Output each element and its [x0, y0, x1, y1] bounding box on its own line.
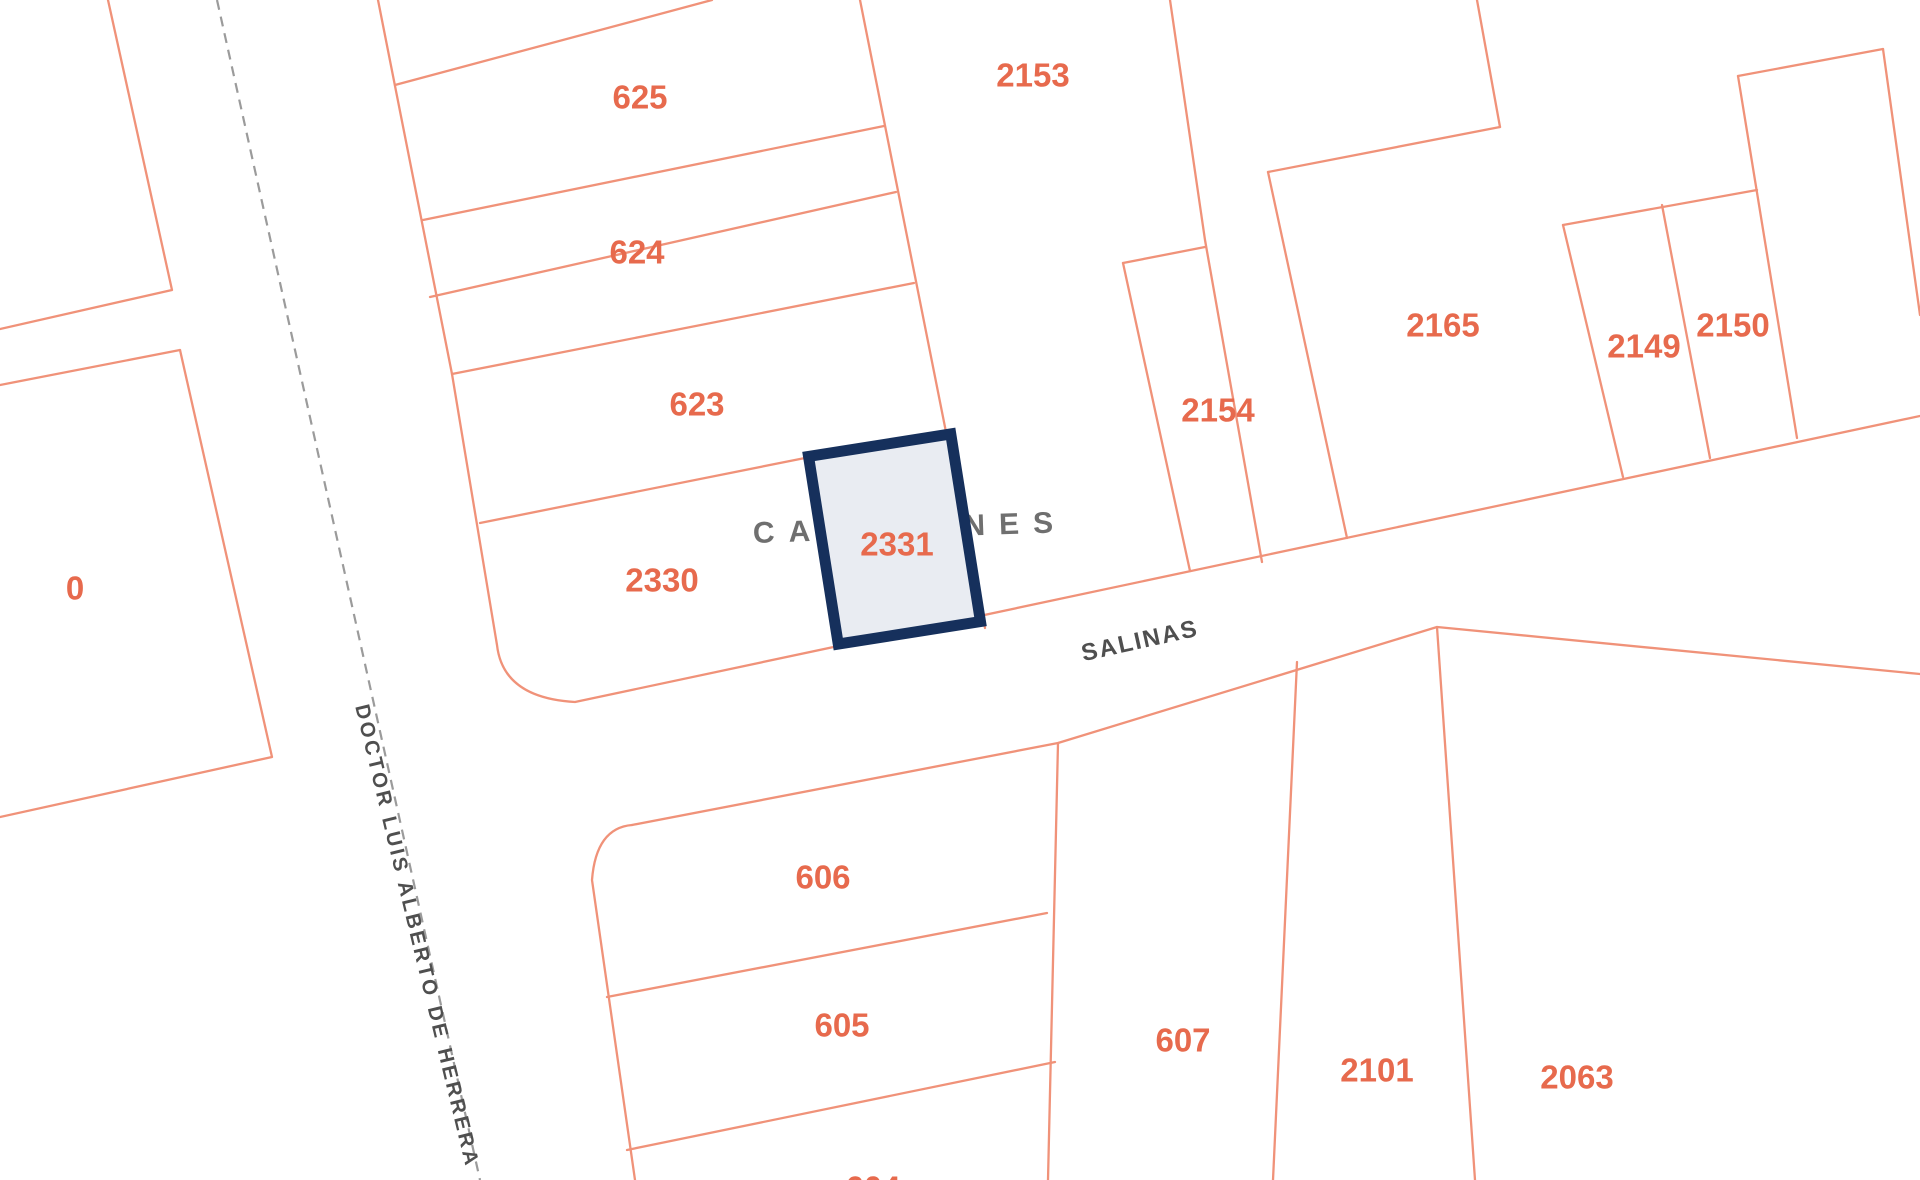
parcel-label-606[interactable]: 606 — [795, 859, 850, 896]
parcel-label-623[interactable]: 623 — [669, 386, 724, 423]
boundary-2149-2150-top — [1563, 190, 1757, 225]
boundary-2154-top — [1123, 247, 1205, 263]
boundary-parcel0-right-bottom — [0, 350, 272, 817]
parcel-label-2150[interactable]: 2150 — [1696, 307, 1769, 344]
boundary-2154-left — [1123, 263, 1190, 571]
parcel-label-2149[interactable]: 2149 — [1607, 328, 1680, 365]
boundary-2165-top — [1268, 127, 1500, 172]
parcel-label-2153[interactable]: 2153 — [996, 57, 1069, 94]
parcel-label-607[interactable]: 607 — [1155, 1022, 1210, 1059]
boundary-606-605 — [607, 913, 1047, 997]
boundary-road-lower-edge — [632, 627, 1920, 825]
boundary-623-2330 — [480, 457, 810, 523]
boundary-625-top — [395, 0, 712, 85]
boundary-625-624 — [423, 126, 884, 220]
boundary-topleft-strip — [0, 0, 172, 329]
parcel-label-0[interactable]: 0 — [66, 570, 84, 607]
parcel-label-624[interactable]: 624 — [609, 234, 665, 271]
boundary-2165-step-up — [1477, 0, 1500, 127]
boundary-block606-left — [592, 825, 635, 1180]
map-viewport[interactable]: CANELONES SALINAS DOCTOR LUIS ALBERTO DE… — [0, 0, 1920, 1180]
boundary-block606-right — [1048, 743, 1058, 1180]
parcel-label-2154[interactable]: 2154 — [1181, 392, 1255, 429]
street-label-salinas: SALINAS — [1079, 615, 1201, 667]
parcel-label-2330[interactable]: 2330 — [625, 562, 698, 599]
parcel-label-2101[interactable]: 2101 — [1340, 1052, 1413, 1089]
boundary-607-2101 — [1273, 662, 1297, 1180]
boundary-605-604 — [627, 1062, 1055, 1150]
parcel-label-2063[interactable]: 2063 — [1540, 1059, 1613, 1096]
map-canvas[interactable]: CANELONES SALINAS DOCTOR LUIS ALBERTO DE… — [0, 0, 1920, 1180]
boundary-2101-2063 — [1437, 627, 1475, 1180]
boundary-parcel0-top — [0, 350, 180, 385]
boundary-right-block-top — [1738, 49, 1883, 76]
parcel-label-2331[interactable]: 2331 — [860, 526, 933, 563]
boundary-2165-left — [1268, 172, 1347, 538]
boundary-2153-right — [1170, 0, 1262, 562]
parcel-label-625[interactable]: 625 — [612, 79, 667, 116]
parcel-label-605[interactable]: 605 — [814, 1007, 869, 1044]
boundary-2150-right — [1738, 76, 1797, 438]
boundary-623-mid — [452, 283, 914, 374]
street-label-herrera: DOCTOR LUIS ALBERTO DE HERRERA — [350, 702, 483, 1170]
boundary-far-right — [1883, 49, 1920, 315]
parcel-label-604[interactable]: 604 — [845, 1170, 901, 1180]
parcel-label-2165[interactable]: 2165 — [1406, 307, 1479, 344]
